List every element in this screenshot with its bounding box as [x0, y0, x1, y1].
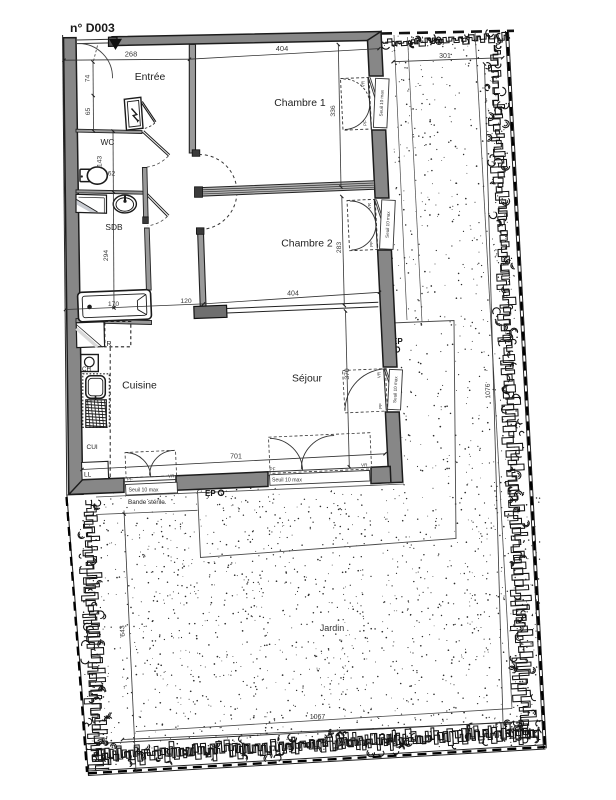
svg-text:Chambre 1: Chambre 1 — [274, 98, 326, 109]
svg-text:PF: PF — [369, 241, 374, 247]
svg-text:294: 294 — [103, 250, 110, 262]
svg-text:VR: VR — [361, 463, 368, 468]
svg-text:PF: PF — [363, 120, 368, 126]
svg-text:Cuisine: Cuisine — [122, 381, 157, 392]
svg-text:n° D003: n° D003 — [70, 21, 115, 35]
svg-text:301: 301 — [439, 53, 451, 60]
svg-text:404: 404 — [287, 291, 299, 298]
svg-text:CH: CH — [82, 366, 91, 373]
svg-text:1067: 1067 — [310, 714, 326, 721]
svg-text:PF: PF — [378, 403, 383, 409]
svg-text:283: 283 — [336, 242, 343, 254]
svg-text:1076: 1076 — [485, 383, 493, 399]
svg-text:EP: EP — [205, 489, 216, 498]
svg-text:VR: VR — [376, 372, 381, 378]
svg-text:VR: VR — [361, 81, 366, 87]
svg-text:643: 643 — [119, 625, 126, 637]
svg-text:170: 170 — [108, 301, 120, 308]
svg-text:CUI: CUI — [87, 444, 98, 451]
svg-text:143: 143 — [97, 156, 104, 168]
svg-text:Chambre 2: Chambre 2 — [281, 239, 333, 250]
svg-text:336: 336 — [330, 105, 337, 117]
svg-text:62: 62 — [108, 171, 116, 178]
svg-text:701: 701 — [230, 454, 242, 461]
svg-text:Bande stérile.: Bande stérile. — [128, 499, 167, 506]
svg-text:268: 268 — [125, 50, 138, 59]
svg-text:Jardin: Jardin — [320, 623, 345, 633]
svg-text:Entrée: Entrée — [135, 72, 166, 83]
svg-text:120: 120 — [180, 298, 192, 305]
svg-text:WC: WC — [101, 137, 115, 147]
svg-text:404: 404 — [276, 44, 289, 53]
svg-text:LL: LL — [84, 472, 92, 479]
svg-text:Séjour: Séjour — [292, 374, 323, 385]
svg-text:VR: VR — [367, 203, 372, 209]
svg-text:65: 65 — [85, 108, 92, 116]
svg-text:Seuil 10 max: Seuil 10 max — [272, 477, 302, 483]
svg-text:VR: VR — [168, 474, 175, 479]
svg-text:74: 74 — [85, 75, 92, 83]
svg-text:R: R — [107, 341, 112, 348]
svg-text:PF: PF — [270, 466, 276, 471]
svg-text:370: 370 — [344, 368, 351, 380]
svg-text:Seuil 10 max: Seuil 10 max — [129, 488, 159, 494]
svg-text:PF: PF — [127, 477, 133, 482]
svg-text:SDB: SDB — [105, 222, 123, 232]
